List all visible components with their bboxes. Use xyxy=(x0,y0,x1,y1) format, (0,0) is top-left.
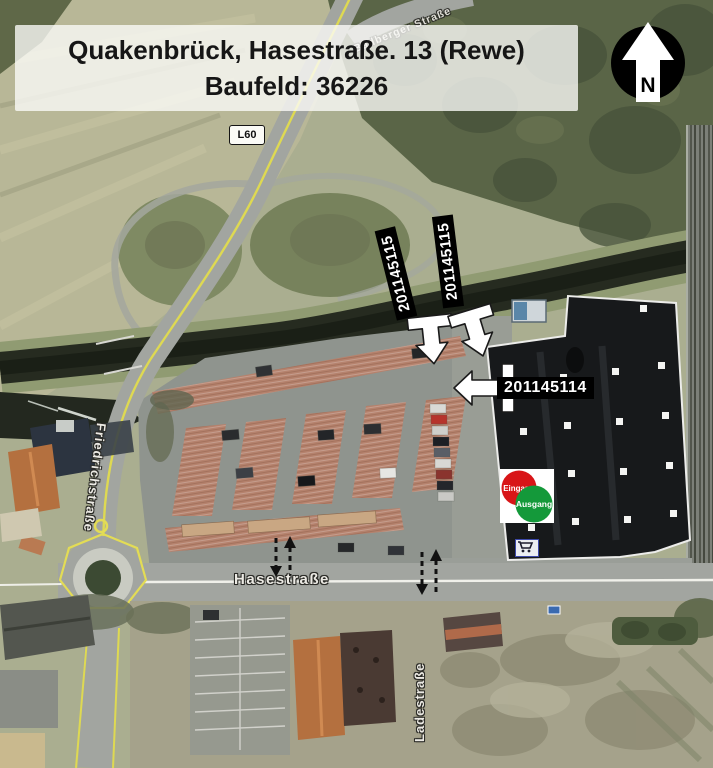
exit-label: Ausgang xyxy=(516,499,552,509)
street-label-hasestrasse: Hasestraße xyxy=(234,571,330,588)
site-plan-map: Quakenbrück, Hasestraße. 13 (Rewe) Baufe… xyxy=(0,0,713,768)
railway xyxy=(686,125,713,623)
title-banner: Quakenbrück, Hasestraße. 13 (Rewe) Baufe… xyxy=(15,25,578,111)
north-label: N xyxy=(609,74,687,98)
north-compass: N xyxy=(609,18,687,110)
shopping-cart-icon xyxy=(515,539,539,557)
street-label-ladestrasse: Ladestraße xyxy=(412,663,427,742)
map-subtitle: Baufeld: 36226 xyxy=(205,68,389,104)
site-id-label-west: 201145114 xyxy=(497,377,594,399)
entrance-exit-marker: Eingang Ausgang xyxy=(500,469,554,523)
route-badge-l60: L60 xyxy=(229,125,265,145)
aerial-basemap xyxy=(0,0,713,768)
map-title: Quakenbrück, Hasestraße. 13 (Rewe) xyxy=(68,32,525,68)
